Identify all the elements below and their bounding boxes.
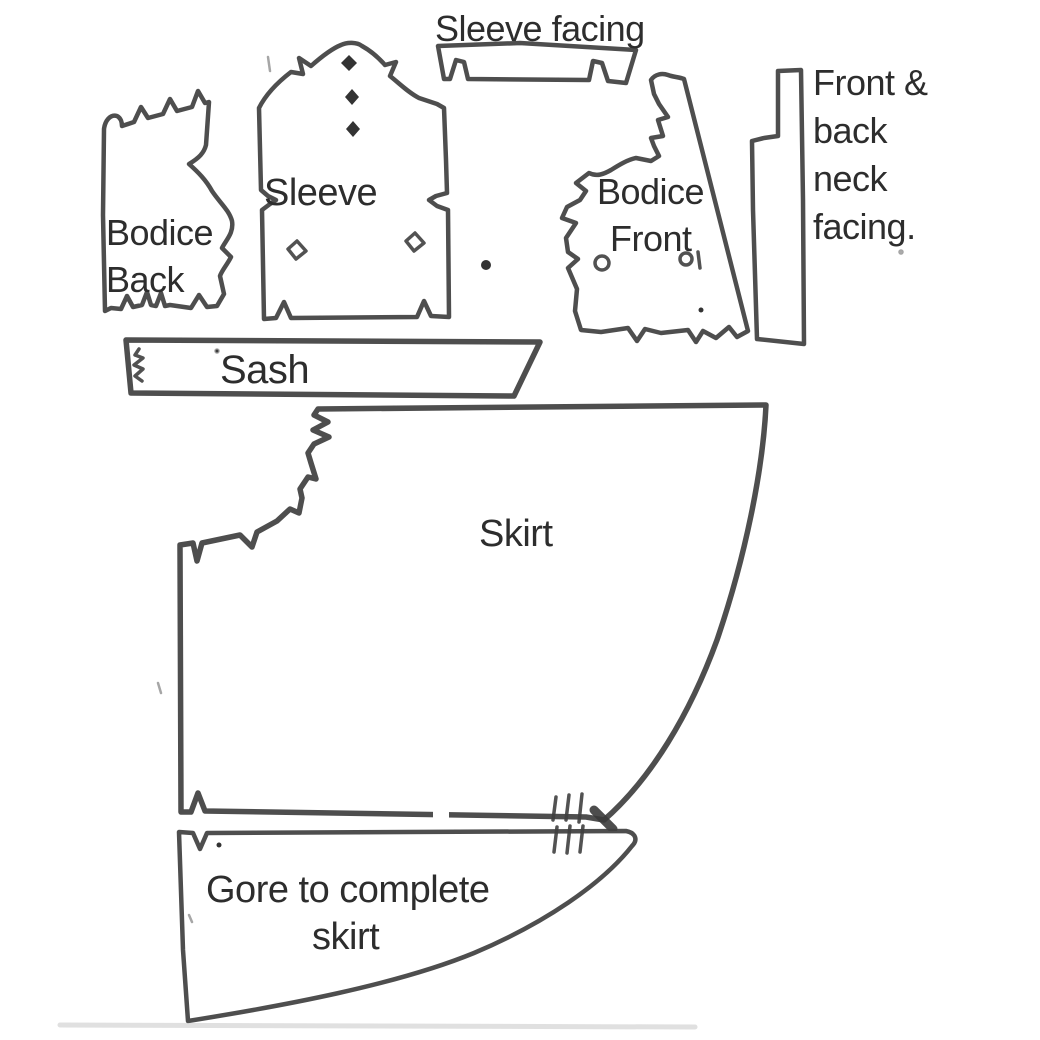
sleeve-piece: Sleeve: [259, 43, 449, 319]
skirt-inner-tick: [158, 683, 161, 693]
bodice-front-tick: [698, 252, 700, 268]
neck-facing-label-line4: facing.: [813, 206, 916, 247]
sleeve-label: Sleeve: [264, 172, 377, 214]
top-scan-speck: [268, 57, 270, 71]
bodice-front-dot: [699, 308, 704, 313]
sash-piece: Sash: [126, 340, 540, 396]
bodice-back-label-line2: Back: [106, 259, 186, 300]
gore-outline: [179, 831, 635, 1021]
sleeve-facing-piece: Sleeve facing: [435, 8, 645, 83]
sash-label: Sash: [220, 348, 309, 392]
right-scan-speck: [900, 251, 903, 254]
neck-facing-piece: Front & back neck facing.: [752, 62, 928, 344]
neck-facing-label-line2: back: [813, 110, 889, 151]
bodice-front-label-line1: Bodice: [597, 171, 704, 212]
skirt-label: Skirt: [479, 513, 553, 555]
scan-dot: [481, 260, 491, 270]
neck-facing-label-line1: Front &: [813, 62, 928, 103]
gore-piece: Gore to complete skirt: [179, 826, 635, 1021]
pattern-sheet: Sleeve facing Bodice Back Sleeve Bodice …: [0, 0, 1040, 1040]
bottom-scan-artifact: [60, 1025, 695, 1027]
gore-label-line1: Gore to complete: [206, 869, 489, 911]
skirt-piece: Skirt: [158, 405, 766, 829]
skirt-outline: [180, 405, 766, 820]
bodice-back-label-line1: Bodice: [106, 212, 213, 253]
neck-facing-outline: [752, 70, 804, 344]
gore-notch-dot: [217, 843, 222, 848]
sash-speck: [216, 350, 219, 353]
gore-label-line2: skirt: [312, 916, 380, 958]
sleeve-facing-outline: [438, 43, 636, 83]
bodice-front-piece: Bodice Front: [562, 74, 748, 342]
neck-facing-label-line3: neck: [813, 158, 889, 199]
sleeve-facing-label: Sleeve facing: [435, 8, 645, 49]
bodice-front-label-line2: Front: [610, 218, 692, 259]
hem-scan-gap: [433, 806, 449, 824]
sash-outline: [126, 340, 540, 396]
bodice-back-piece: Bodice Back: [103, 91, 232, 311]
pattern-diagram: Sleeve facing Bodice Back Sleeve Bodice …: [0, 0, 1040, 1040]
